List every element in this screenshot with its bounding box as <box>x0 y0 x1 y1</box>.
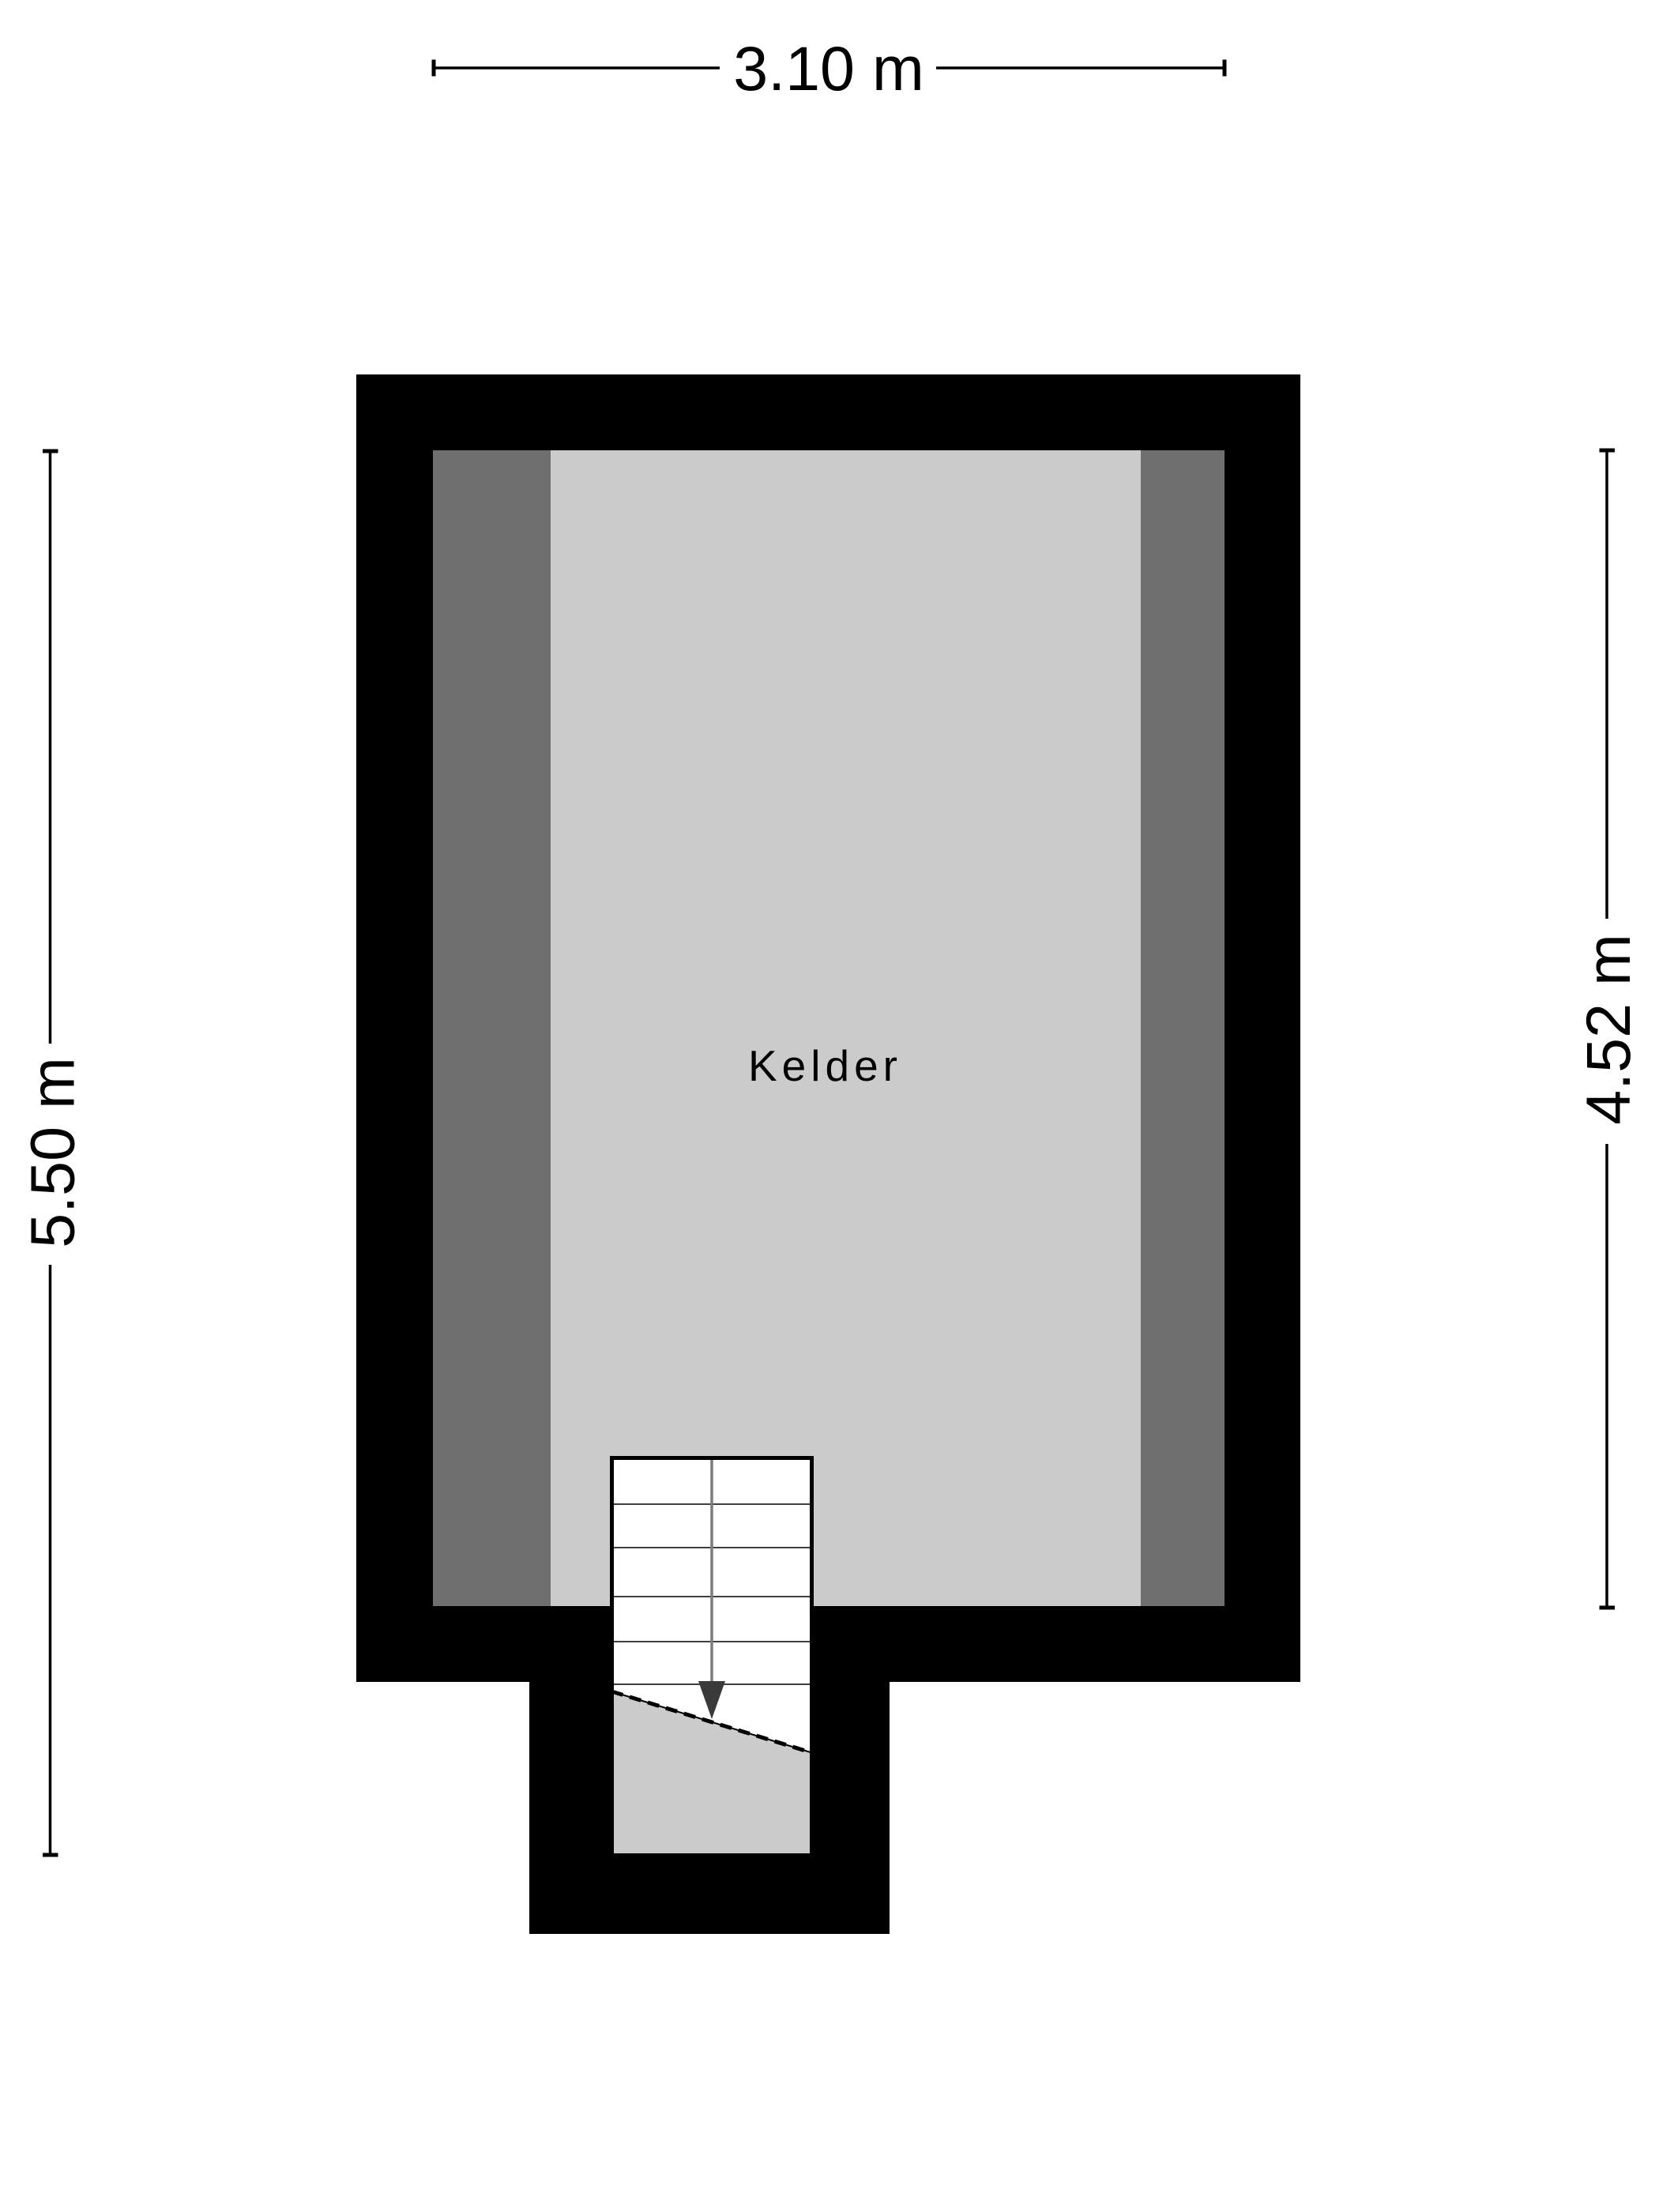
svg-text:3.10 m: 3.10 m <box>733 33 924 103</box>
svg-text:4.52 m: 4.52 m <box>1573 934 1643 1125</box>
svg-text:Kelder: Kelder <box>748 1041 902 1090</box>
svg-text:5.50 m: 5.50 m <box>17 1057 88 1248</box>
